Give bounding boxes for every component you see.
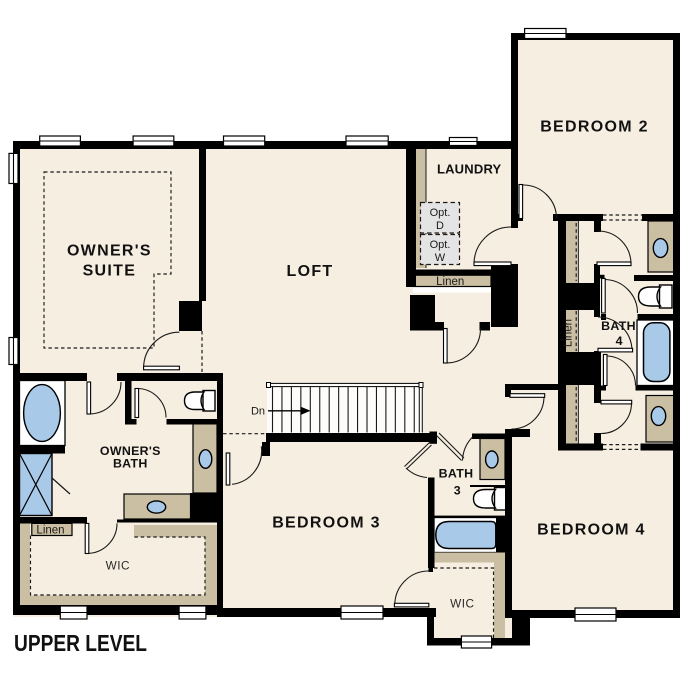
svg-text:W: W: [435, 252, 446, 264]
svg-text:WIC: WIC: [450, 597, 474, 611]
svg-text:OWNER'S: OWNER'S: [67, 242, 152, 259]
svg-text:BEDROOM 3: BEDROOM 3: [272, 515, 381, 532]
svg-text:Dn: Dn: [251, 406, 265, 418]
svg-text:UPPER LEVEL: UPPER LEVEL: [14, 630, 147, 656]
svg-text:BATH: BATH: [113, 457, 148, 471]
svg-text:Linen: Linen: [563, 319, 575, 347]
svg-text:4: 4: [616, 334, 623, 348]
svg-text:Opt.: Opt.: [430, 239, 451, 251]
svg-text:LAUNDRY: LAUNDRY: [437, 162, 502, 177]
svg-text:BATH: BATH: [601, 319, 636, 333]
svg-text:WIC: WIC: [106, 558, 130, 572]
svg-text:Linen: Linen: [36, 525, 64, 537]
svg-text:BEDROOM 4: BEDROOM 4: [537, 522, 646, 539]
svg-text:3: 3: [454, 483, 461, 497]
svg-text:D: D: [436, 220, 444, 232]
svg-text:SUITE: SUITE: [83, 263, 137, 280]
svg-text:LOFT: LOFT: [287, 263, 334, 280]
svg-text:BEDROOM 2: BEDROOM 2: [540, 119, 649, 136]
svg-text:Linen: Linen: [436, 276, 464, 288]
svg-text:BATH: BATH: [439, 467, 474, 481]
svg-text:Opt.: Opt.: [430, 207, 451, 219]
